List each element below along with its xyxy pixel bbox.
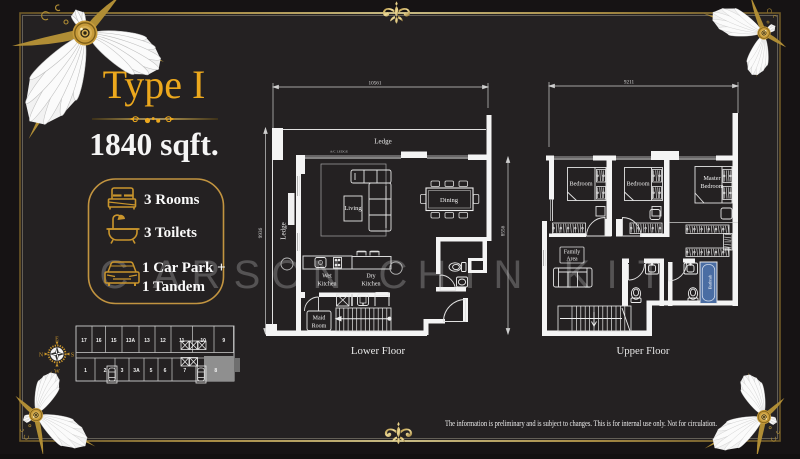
svg-text:E: E — [55, 337, 59, 343]
svg-text:9211: 9211 — [624, 80, 635, 86]
svg-text:Dry: Dry — [366, 274, 375, 280]
svg-text:I: I — [606, 253, 617, 297]
svg-text:3A: 3A — [133, 368, 140, 374]
svg-text:Bedroom: Bedroom — [626, 181, 649, 188]
svg-text:9936: 9936 — [258, 227, 264, 238]
svg-text:W: W — [54, 369, 60, 375]
svg-text:8: 8 — [214, 368, 217, 374]
svg-text:Bedroom: Bedroom — [700, 183, 723, 190]
svg-text:S: S — [71, 353, 74, 359]
svg-text:3 Rooms: 3 Rooms — [144, 192, 200, 208]
svg-text:C: C — [379, 253, 408, 297]
svg-text:Kitchen: Kitchen — [318, 282, 337, 288]
svg-text:S: S — [234, 253, 261, 297]
svg-text:Room: Room — [312, 324, 327, 330]
svg-text:Ledge: Ledge — [374, 138, 392, 146]
svg-text:16: 16 — [96, 338, 102, 344]
svg-text:C: C — [100, 253, 129, 297]
svg-text:3 Toilets: 3 Toilets — [144, 225, 197, 241]
svg-text:6: 6 — [164, 368, 167, 374]
svg-text:3: 3 — [121, 368, 124, 374]
svg-text:12: 12 — [160, 338, 166, 344]
svg-text:1 Car Park +: 1 Car Park + — [142, 260, 226, 276]
svg-text:Wet: Wet — [322, 274, 332, 280]
svg-text:1: 1 — [84, 368, 87, 374]
svg-text:Ledge: Ledge — [280, 222, 288, 240]
svg-text:N: N — [39, 353, 44, 359]
svg-text:10561: 10561 — [369, 81, 382, 87]
svg-text:Master: Master — [703, 175, 720, 182]
svg-text:The information is preliminary: The information is preliminary and is su… — [445, 419, 717, 428]
svg-text:Lower Floor: Lower Floor — [351, 345, 406, 357]
svg-text:8556: 8556 — [501, 225, 507, 236]
svg-text:Area: Area — [566, 257, 578, 263]
svg-text:Maid: Maid — [313, 316, 326, 322]
svg-text:Living: Living — [344, 205, 362, 212]
svg-text:Family: Family — [564, 250, 581, 256]
svg-text:1 Tandem: 1 Tandem — [142, 279, 205, 295]
svg-text:15: 15 — [111, 338, 117, 344]
svg-text:Bedroom: Bedroom — [569, 181, 592, 188]
svg-text:Dining: Dining — [440, 197, 459, 204]
svg-text:7: 7 — [183, 368, 186, 374]
svg-text:A/C LEDGE: A/C LEDGE — [330, 150, 348, 154]
svg-text:Upper Floor: Upper Floor — [616, 345, 669, 357]
svg-text:13: 13 — [144, 338, 150, 344]
svg-text:5: 5 — [150, 368, 153, 374]
svg-text:17: 17 — [81, 338, 87, 344]
svg-text:Kitchen: Kitchen — [362, 282, 381, 288]
svg-text:9: 9 — [222, 338, 225, 344]
svg-text:13A: 13A — [126, 338, 136, 344]
svg-text:2: 2 — [104, 368, 107, 374]
svg-text:1840 sqft.: 1840 sqft. — [89, 127, 219, 162]
svg-text:Bathtub: Bathtub — [708, 274, 713, 289]
